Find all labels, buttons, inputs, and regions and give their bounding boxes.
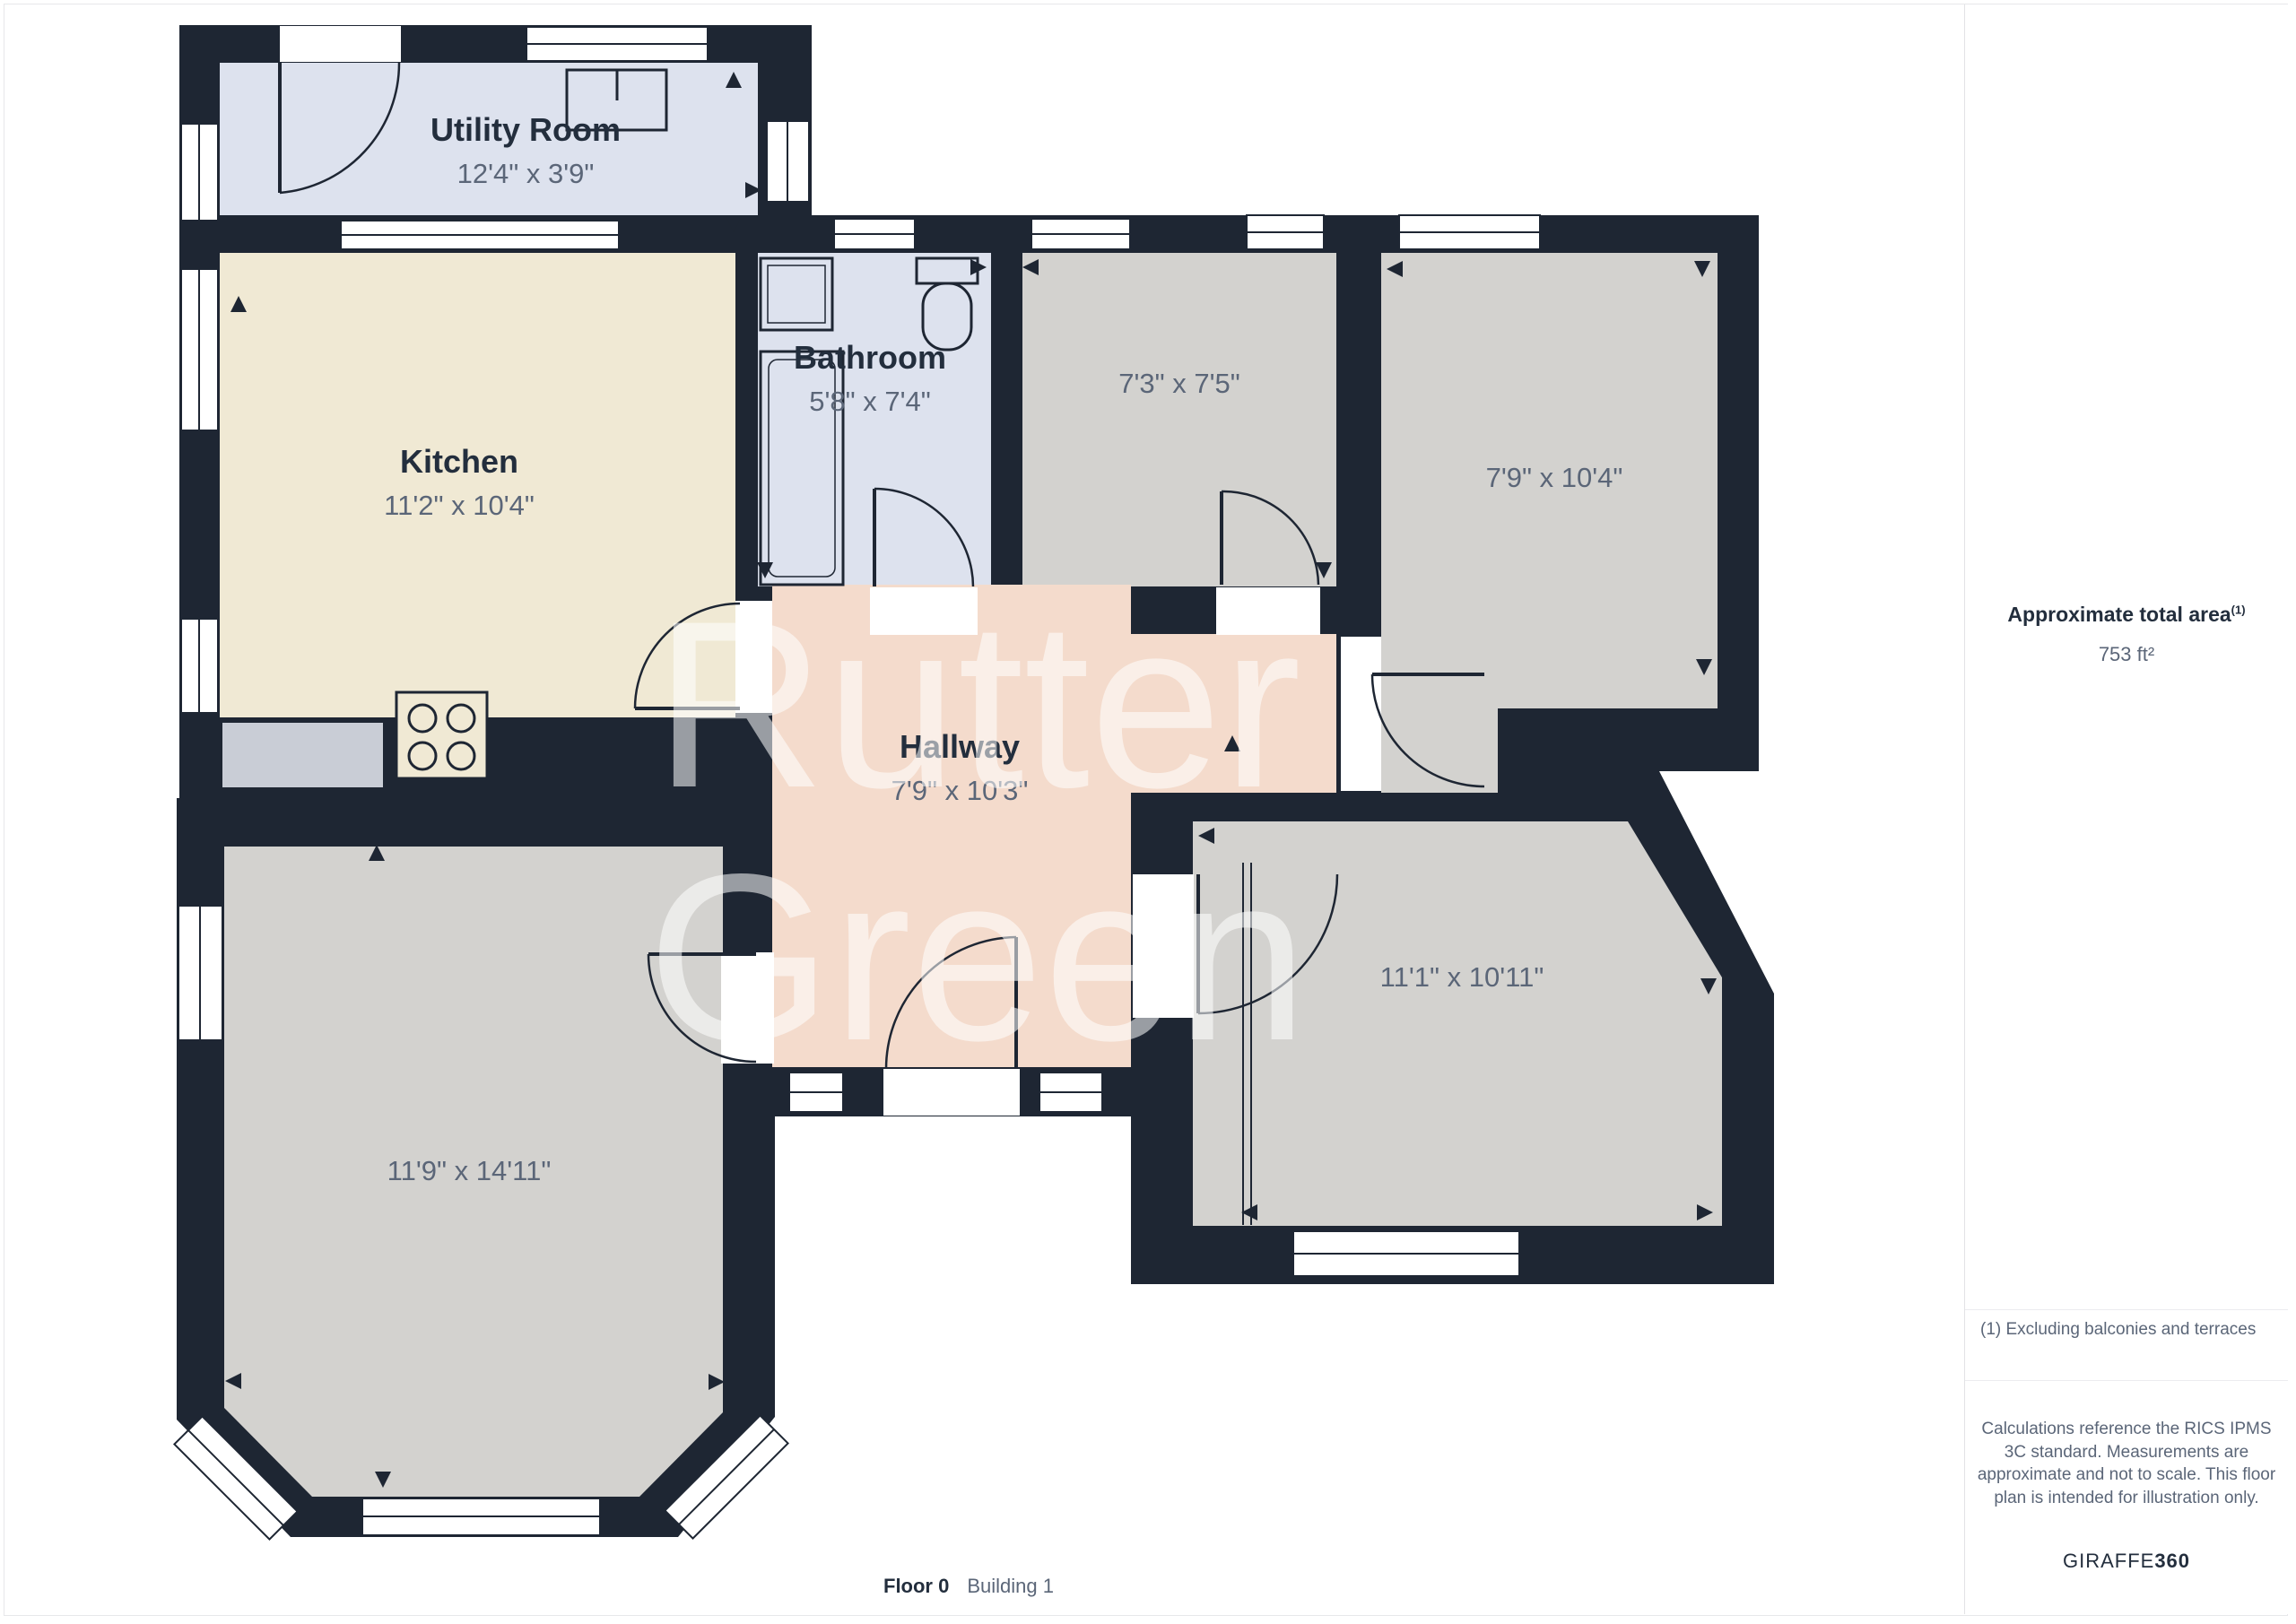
building-label[interactable]: Building 1 xyxy=(967,1575,1054,1597)
disclaimer-text: Calculations reference the RICS IPMS 3C … xyxy=(1974,1418,2279,1509)
total-area-value: 753 ft² xyxy=(1965,643,2288,666)
room-name: Kitchen xyxy=(384,439,535,485)
room-dims: 12'4" x 3'9" xyxy=(430,153,621,195)
brand-logo: GIRAFFE360 xyxy=(1965,1550,2288,1573)
window-icon xyxy=(1399,215,1540,249)
room-79-area-tab xyxy=(1381,708,1498,793)
counter-icon xyxy=(222,723,383,787)
floor-selector: Floor 0Building 1 xyxy=(883,1575,1054,1598)
window-icon xyxy=(181,269,218,430)
room-label-room-73: 7'3" x 7'5" xyxy=(1118,363,1240,404)
room-dims: 11'2" x 10'4" xyxy=(384,485,535,526)
room-label-hallway: Hallway 7'9" x 10'3" xyxy=(891,724,1029,812)
window-icon xyxy=(1247,215,1324,249)
brand-suffix: 360 xyxy=(2154,1550,2190,1572)
room-label-kitchen: Kitchen 11'2" x 10'4" xyxy=(384,439,535,526)
stove-icon xyxy=(396,692,487,778)
room-dims: 7'3" x 7'5" xyxy=(1118,363,1240,404)
room-111-area xyxy=(1193,821,1722,1226)
basin-icon xyxy=(761,258,832,330)
window-icon xyxy=(362,1498,600,1535)
room-dims: 7'9" x 10'4" xyxy=(1486,457,1623,499)
window-icon xyxy=(181,124,218,221)
window-icon xyxy=(1031,219,1130,249)
room-dims: 5'8" x 7'4" xyxy=(794,381,946,422)
room-dims: 7'9" x 10'3" xyxy=(891,770,1029,812)
room-label-room-79: 7'9" x 10'4" xyxy=(1486,457,1623,499)
divider xyxy=(1965,1380,2288,1381)
window-icon xyxy=(767,121,809,202)
room-dims: 11'1" x 10'11" xyxy=(1380,957,1544,998)
window-icon xyxy=(181,619,218,713)
window-icon xyxy=(789,1073,843,1112)
room-label-room-111: 11'1" x 10'11" xyxy=(1380,957,1544,998)
footnote-marker: (1) xyxy=(2231,603,2246,616)
room-73-area xyxy=(1022,253,1336,586)
floor-plan xyxy=(0,0,2296,1624)
total-area-label: Approximate total area xyxy=(2007,603,2231,626)
total-area-title: Approximate total area(1) xyxy=(1965,603,2288,627)
room-label-room-119: 11'9" x 14'11" xyxy=(387,1151,552,1192)
floor-label[interactable]: Floor 0 xyxy=(883,1575,949,1597)
room-name: Utility Room xyxy=(430,107,621,153)
footnote-text: (1) Excluding balconies and terraces xyxy=(1980,1320,2276,1340)
window-icon xyxy=(1039,1073,1102,1112)
room-dims: 11'9" x 14'11" xyxy=(387,1151,552,1192)
window-icon xyxy=(178,906,222,1040)
room-name: Hallway xyxy=(891,724,1029,770)
brand-name: GIRAFFE xyxy=(2063,1550,2154,1572)
window-icon xyxy=(1293,1231,1519,1276)
room-label-bathroom: Bathroom 5'8" x 7'4" xyxy=(794,334,946,422)
window-icon xyxy=(341,221,619,249)
window-icon xyxy=(834,219,915,249)
info-sidebar: Approximate total area(1) 753 ft² (1) Ex… xyxy=(1964,4,2288,1614)
room-label-utility: Utility Room 12'4" x 3'9" xyxy=(430,107,621,195)
window-icon xyxy=(526,27,708,61)
room-name: Bathroom xyxy=(794,334,946,381)
divider xyxy=(1965,1309,2288,1310)
